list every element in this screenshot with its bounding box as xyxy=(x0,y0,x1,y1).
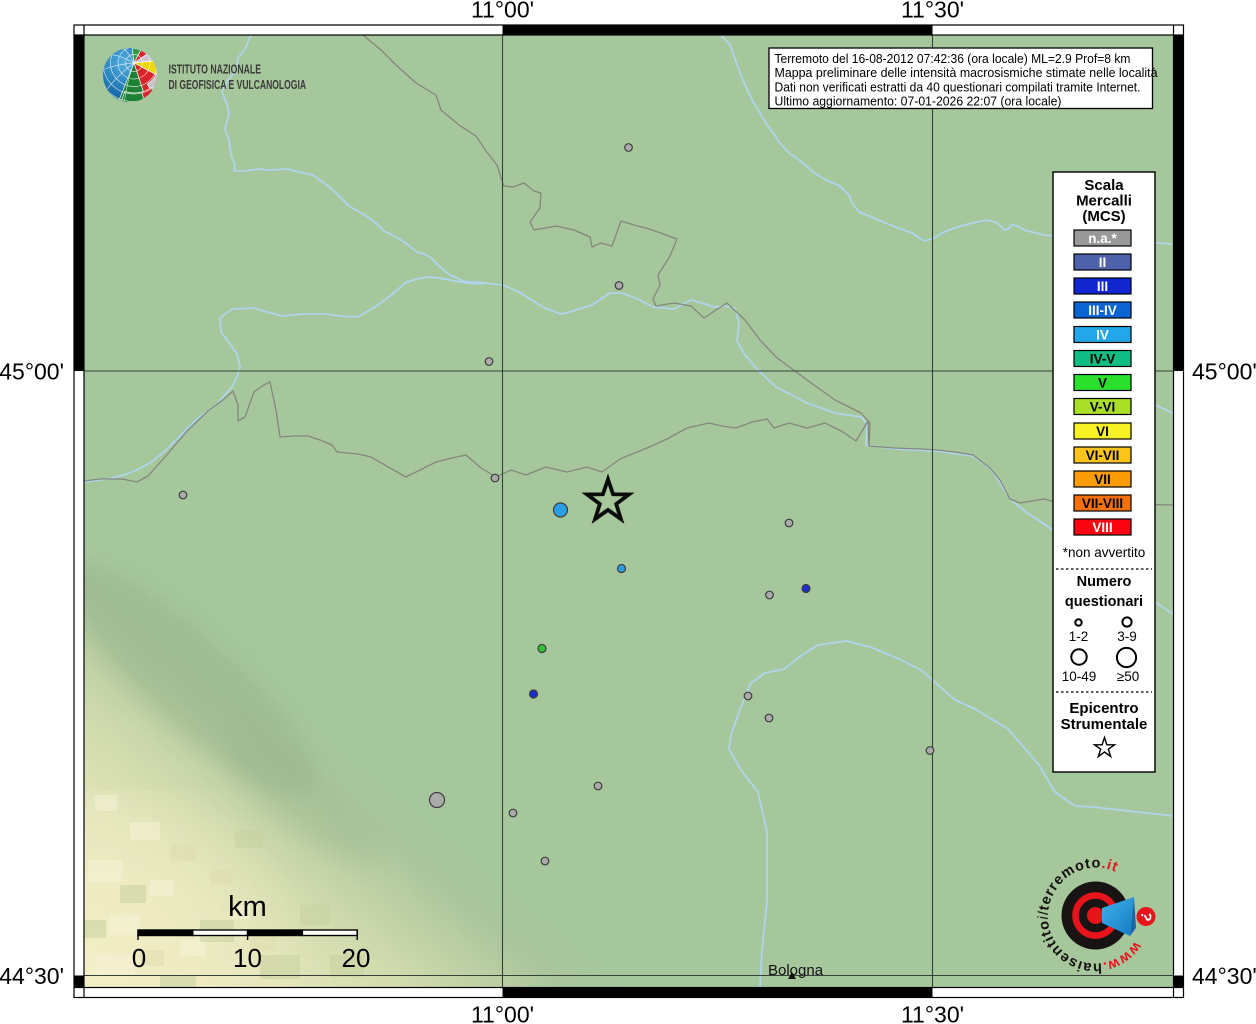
svg-text:Dati non verificati estratti d: Dati non verificati estratti da 40 quest… xyxy=(775,80,1141,94)
svg-text:11°00': 11°00' xyxy=(471,0,534,23)
svg-text:11°30': 11°30' xyxy=(901,1002,964,1024)
svg-text:Numero: Numero xyxy=(1077,574,1132,590)
svg-text:DI GEOFISICA E VULCANOLOGIA: DI GEOFISICA E VULCANOLOGIA xyxy=(169,77,307,92)
svg-text:1-2: 1-2 xyxy=(1069,629,1089,644)
svg-text:Mappa preliminare delle intens: Mappa preliminare delle intensità macros… xyxy=(775,66,1158,80)
svg-text:IV-V: IV-V xyxy=(1090,352,1116,367)
svg-text:V: V xyxy=(1098,376,1107,391)
svg-text:3-9: 3-9 xyxy=(1117,629,1137,644)
svg-text:20: 20 xyxy=(342,943,371,973)
svg-text:VII-VIII: VII-VIII xyxy=(1082,496,1123,511)
svg-text:44°30': 44°30' xyxy=(0,963,64,989)
svg-text:VI-VII: VI-VII xyxy=(1086,448,1120,463)
svg-text:km: km xyxy=(228,891,267,923)
svg-text:0: 0 xyxy=(132,943,146,973)
svg-text:10-49: 10-49 xyxy=(1062,669,1097,684)
svg-text:II: II xyxy=(1099,255,1107,270)
svg-text:45°00': 45°00' xyxy=(1192,359,1256,385)
svg-text:questionari: questionari xyxy=(1065,594,1143,610)
svg-text:Strumentale: Strumentale xyxy=(1061,716,1148,733)
svg-text:≥50: ≥50 xyxy=(1117,669,1139,684)
svg-text:(MCS): (MCS) xyxy=(1082,208,1125,225)
svg-text:Mercalli: Mercalli xyxy=(1076,193,1132,210)
svg-text:Epicentro: Epicentro xyxy=(1069,700,1138,717)
svg-text:VII: VII xyxy=(1094,472,1111,487)
svg-text:Bologna: Bologna xyxy=(768,962,824,979)
svg-text:10: 10 xyxy=(233,943,262,973)
svg-text:*non avvertito: *non avvertito xyxy=(1063,545,1146,560)
svg-text:III: III xyxy=(1097,279,1108,294)
svg-text:44°30': 44°30' xyxy=(1192,963,1256,989)
svg-text:11°00': 11°00' xyxy=(471,1002,534,1024)
svg-text:V-VI: V-VI xyxy=(1090,400,1116,415)
svg-text:Scala: Scala xyxy=(1084,177,1124,194)
svg-text:ISTITUTO NAZIONALE: ISTITUTO NAZIONALE xyxy=(169,62,262,77)
svg-text:VIII: VIII xyxy=(1092,520,1112,535)
svg-text:n.a.*: n.a.* xyxy=(1088,231,1117,246)
svg-text:IV: IV xyxy=(1096,328,1109,343)
svg-text:III-IV: III-IV xyxy=(1088,303,1117,318)
svg-text:11°30': 11°30' xyxy=(901,0,964,23)
svg-text:45°00': 45°00' xyxy=(0,359,64,385)
svg-text:Ultimo aggiornamento: 07-01-20: Ultimo aggiornamento: 07-01-2026 22:07 (… xyxy=(775,95,1062,109)
svg-text:Terremoto del 16-08-2012 07:42: Terremoto del 16-08-2012 07:42:36 (ora l… xyxy=(775,52,1131,66)
svg-text:VI: VI xyxy=(1096,424,1109,439)
